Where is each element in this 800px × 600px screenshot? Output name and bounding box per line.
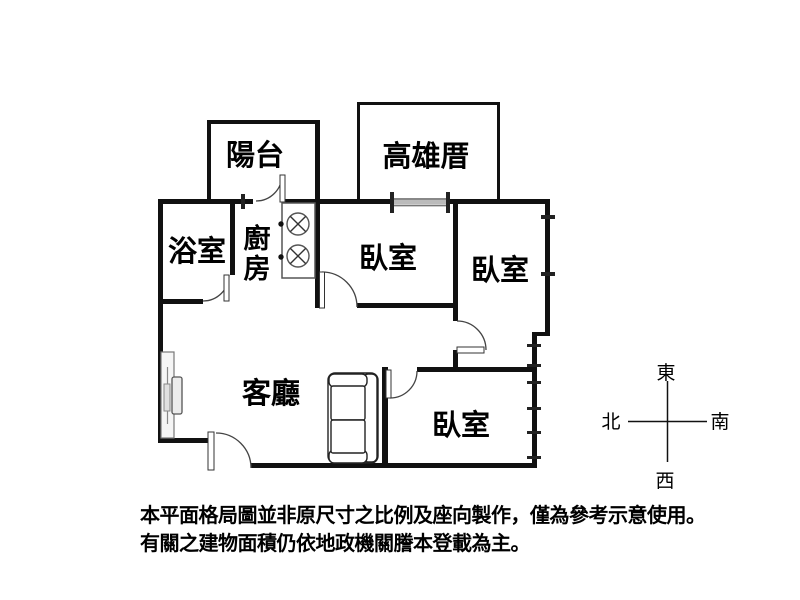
window-tick-6	[527, 456, 541, 459]
window-cap-right-wall-2	[541, 272, 555, 276]
room-label-kitchen-char1: 廚	[244, 223, 271, 255]
door-bedroom-top-arc	[322, 272, 357, 307]
door-bedroom-bottom	[386, 370, 417, 398]
door-bedroom-right-arc	[457, 321, 486, 350]
room-label-bedroom-right: 臥室	[471, 253, 529, 287]
room-label-bathroom: 浴室	[168, 234, 226, 268]
wall-jamb-tick	[241, 194, 245, 209]
door-bedroom-bottom-leaf	[386, 370, 391, 398]
wall-balcony-left	[207, 120, 211, 200]
door-entrance-leaf	[208, 432, 214, 470]
sofa-icon	[328, 373, 378, 463]
window-tick-2	[527, 364, 541, 367]
door-bedroom-bottom-arc	[390, 371, 417, 398]
compass: 東 北 南 西	[601, 362, 729, 492]
sofa-armrest-top	[329, 374, 367, 387]
wall-kcuo-right	[497, 102, 500, 204]
stove-knob-1	[278, 221, 283, 226]
window-top-bedroom	[390, 192, 450, 213]
door-entrance	[208, 432, 251, 470]
wall-bottom-left	[158, 438, 210, 443]
door-balcony-leaf	[280, 175, 285, 202]
disclaimer-line-1: 本平面格局圖並非原尺寸之比例及座向製作，僅為參考示意使用。	[140, 503, 706, 527]
window-cap-left	[390, 192, 394, 213]
wall-right-outer-upper	[545, 199, 550, 336]
door-bedroom-right-leaf	[457, 347, 484, 353]
door-bathroom	[203, 275, 229, 301]
room-label-kaohsiung-cuo: 高雄厝	[382, 139, 469, 173]
window-mid	[394, 200, 447, 204]
wall-bottom	[251, 463, 537, 468]
room-label-living-room: 客廳	[242, 376, 300, 410]
window-tick-4	[527, 407, 541, 410]
floor-plan-drawing: 陽台 高雄厝 浴室 廚 房 臥室 臥室 客廳 臥室 東 北 南 西 本平面格局圖…	[0, 0, 800, 600]
door-entrance-arc	[216, 433, 251, 468]
wall-bathroom-right	[230, 199, 235, 275]
wall-top-a	[158, 199, 253, 204]
wall-bedroom-right-left-upper	[453, 308, 458, 321]
sofa-cushion-1	[331, 386, 365, 420]
window-cap-right-wall-1	[541, 215, 555, 219]
room-label-bedroom-bottom: 臥室	[432, 408, 490, 442]
wall-bedroom-top-bottom	[357, 303, 457, 308]
compass-west: 西	[655, 470, 674, 492]
wall-kcuo-left	[357, 102, 360, 202]
disclaimer-line-2: 有關之建物面積仍依地政機關謄本登載為主。	[140, 531, 530, 555]
tv-icon	[172, 377, 182, 414]
door-bedroom-right	[457, 321, 486, 353]
compass-north: 北	[601, 411, 620, 433]
wall-kcuo-top	[357, 102, 500, 105]
wall-bathroom-bottom	[158, 299, 203, 304]
door-bedroom-top	[320, 272, 358, 308]
room-label-kitchen-char2: 房	[244, 254, 271, 285]
tv-cabinet-inner	[164, 384, 170, 411]
door-balcony	[256, 175, 285, 202]
stove-knob-2	[278, 254, 283, 259]
stove-icon	[278, 203, 315, 278]
door-balcony-arc	[256, 175, 282, 201]
window-tick-1	[527, 344, 541, 347]
door-bathroom-leaf	[224, 275, 229, 301]
floor-plan-page: 陽台 高雄厝 浴室 廚 房 臥室 臥室 客廳 臥室 東 北 南 西 本平面格局圖…	[0, 0, 800, 600]
wall-top-c	[320, 199, 392, 204]
compass-south: 南	[710, 411, 729, 433]
wall-bedroom-bottom-top	[417, 367, 536, 372]
room-label-bedroom-top: 臥室	[359, 241, 417, 275]
room-label-balcony: 陽台	[226, 138, 284, 172]
window-tick-5	[527, 431, 541, 434]
compass-east: 東	[656, 362, 675, 384]
sofa-cushion-2	[331, 420, 365, 453]
disclaimer-text: 本平面格局圖並非原尺寸之比例及座向製作，僅為參考示意使用。 有關之建物面積仍依地…	[140, 503, 706, 555]
window-cap-right	[446, 192, 450, 213]
wall-bedroom-top-right	[453, 199, 458, 308]
door-bedroom-top-leaf	[320, 272, 325, 308]
window-tick-3	[527, 381, 541, 384]
wall-right-outer-lower	[532, 334, 537, 467]
tv-cabinet-icon	[161, 352, 182, 438]
wall-balcony-top	[207, 120, 317, 124]
